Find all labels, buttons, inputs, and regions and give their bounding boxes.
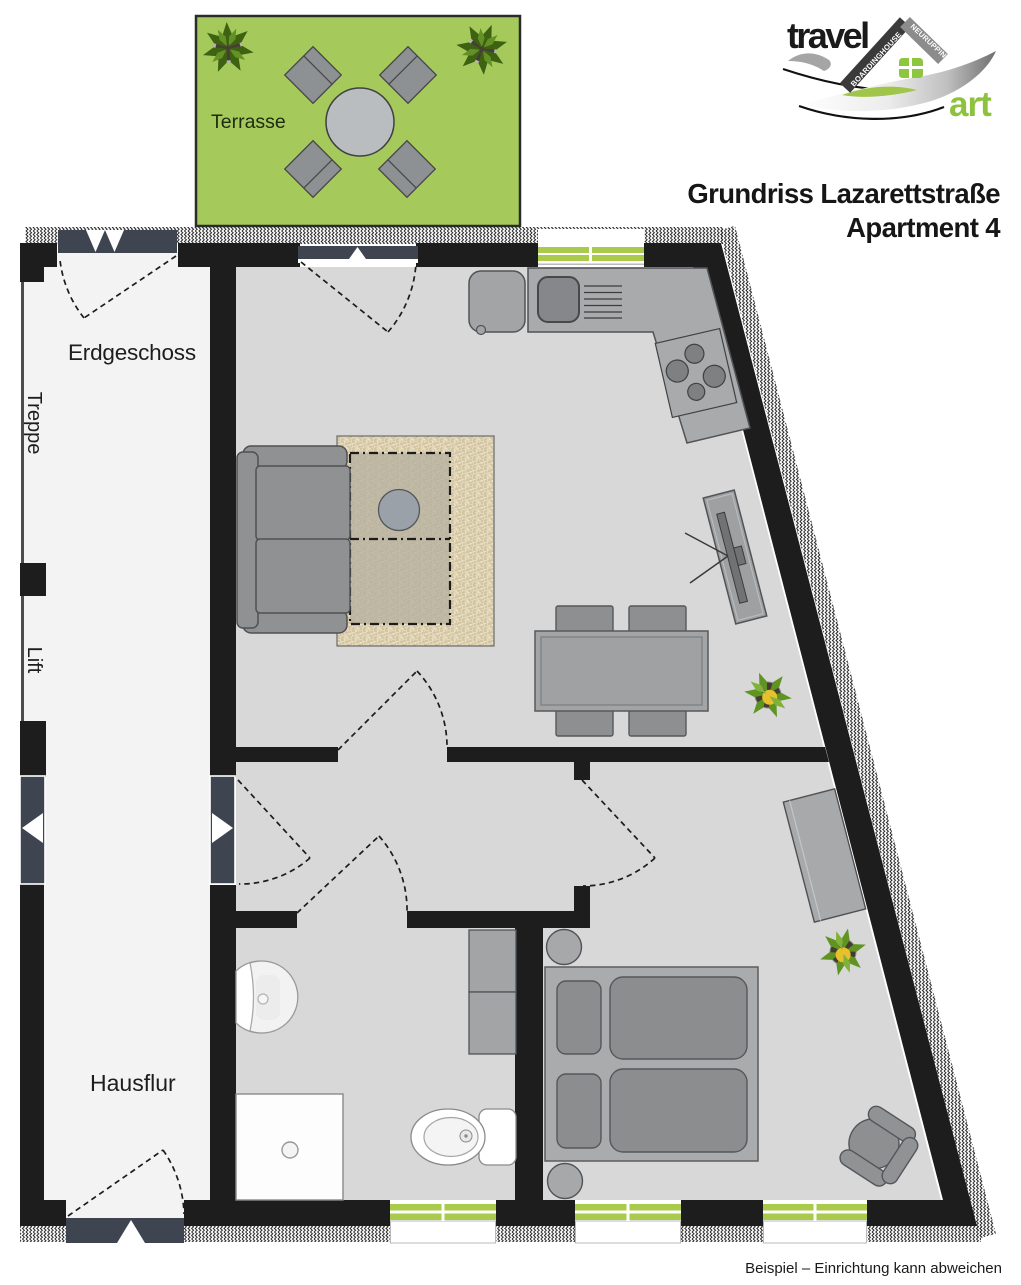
svg-text:Grundriss Lazarettstraße: Grundriss Lazarettstraße xyxy=(687,178,1000,209)
svg-text:art: art xyxy=(949,85,992,124)
svg-text:Apartment 4: Apartment 4 xyxy=(846,212,1001,243)
svg-text:Treppe: Treppe xyxy=(23,392,45,455)
svg-text:Hausflur: Hausflur xyxy=(90,1070,176,1096)
svg-text:Beispiel – Einrichtung kann ab: Beispiel – Einrichtung kann abweichen xyxy=(745,1260,1002,1277)
svg-text:Terrasse: Terrasse xyxy=(211,111,286,133)
svg-text:Lift: Lift xyxy=(23,647,45,674)
svg-text:Erdgeschoss: Erdgeschoss xyxy=(68,340,196,365)
svg-text:travel: travel xyxy=(787,15,868,56)
